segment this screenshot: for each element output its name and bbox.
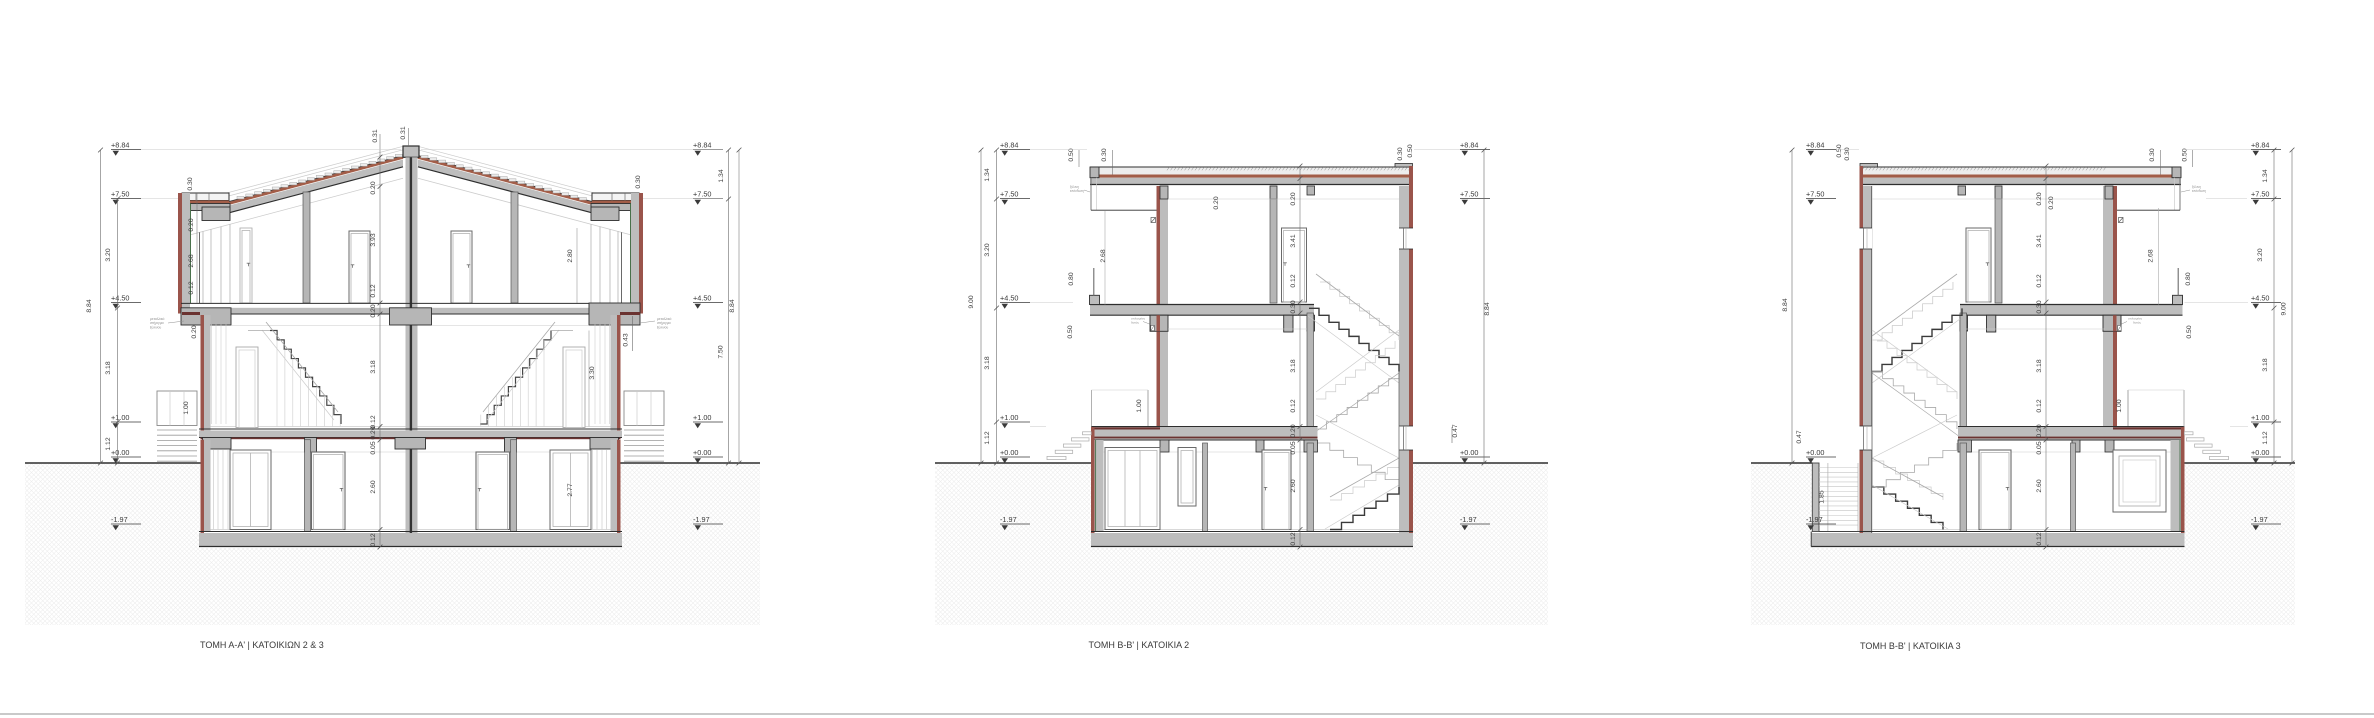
svg-text:0.31: 0.31 — [372, 129, 379, 142]
svg-text:+1.00: +1.00 — [111, 413, 129, 422]
svg-text:1.34: 1.34 — [984, 168, 991, 181]
svg-text:0.50: 0.50 — [1836, 144, 1843, 157]
svg-text:0.31: 0.31 — [400, 126, 407, 139]
svg-text:2.68: 2.68 — [188, 254, 195, 267]
svg-text:1.34: 1.34 — [2262, 169, 2269, 182]
svg-text:+8.84: +8.84 — [2251, 141, 2269, 150]
svg-text:0.20: 0.20 — [1290, 192, 1297, 205]
svg-text:0.80: 0.80 — [2185, 272, 2192, 285]
svg-text:7.50: 7.50 — [718, 345, 725, 358]
svg-text:+0.00: +0.00 — [1000, 448, 1018, 457]
svg-text:0.12: 0.12 — [1290, 274, 1297, 287]
svg-text:0.30: 0.30 — [187, 177, 194, 190]
svg-text:0.43: 0.43 — [623, 333, 630, 346]
svg-text:+8.84: +8.84 — [693, 141, 711, 150]
svg-text:3.41: 3.41 — [1290, 234, 1297, 247]
svg-text:+8.84: +8.84 — [111, 141, 129, 150]
svg-text:3.93: 3.93 — [370, 233, 377, 246]
svg-text:+7.50: +7.50 — [2251, 190, 2269, 199]
svg-text:0.12: 0.12 — [2036, 399, 2043, 412]
svg-text:+0.00: +0.00 — [111, 448, 129, 457]
svg-text:+4.50: +4.50 — [2251, 294, 2269, 303]
svg-text:2.60: 2.60 — [370, 480, 377, 493]
svg-text:1.00: 1.00 — [2116, 399, 2123, 412]
svg-text:0.20: 0.20 — [370, 304, 377, 317]
svg-text:0.30: 0.30 — [2149, 148, 2156, 161]
svg-text:2.77: 2.77 — [567, 483, 574, 496]
svg-text:1.00: 1.00 — [1136, 399, 1143, 412]
svg-text:+8.84: +8.84 — [1460, 141, 1478, 150]
svg-text:0.47: 0.47 — [1796, 430, 1803, 443]
svg-text:+7.50: +7.50 — [1460, 190, 1478, 199]
svg-text:0.80: 0.80 — [1068, 272, 1075, 285]
svg-text:0.47: 0.47 — [1452, 424, 1459, 437]
svg-text:+7.50: +7.50 — [693, 190, 711, 199]
svg-text:επένδυση: επένδυση — [2192, 189, 2206, 193]
svg-text:1.12: 1.12 — [984, 431, 991, 444]
svg-text:ΤΟΜΗ Α-Α' | ΚΑΤΟΙΚΙΩΝ 2 & 3: ΤΟΜΗ Α-Α' | ΚΑΤΟΙΚΙΩΝ 2 & 3 — [200, 640, 324, 650]
svg-text:3.18: 3.18 — [984, 356, 991, 369]
svg-text:+7.50: +7.50 — [1806, 190, 1824, 199]
svg-text:0.20: 0.20 — [2036, 424, 2043, 437]
svg-text:0.50: 0.50 — [2186, 325, 2193, 338]
svg-text:-1.97: -1.97 — [693, 515, 710, 524]
svg-text:+7.50: +7.50 — [111, 190, 129, 199]
svg-text:0.50: 0.50 — [1068, 148, 1075, 161]
svg-text:+7.50: +7.50 — [1000, 190, 1018, 199]
svg-text:+1.00: +1.00 — [2251, 413, 2269, 422]
svg-text:+1.00: +1.00 — [693, 413, 711, 422]
svg-text:0.12: 0.12 — [2036, 274, 2043, 287]
svg-text:δοκός: δοκός — [2133, 320, 2141, 324]
svg-text:+8.84: +8.84 — [1000, 141, 1018, 150]
svg-text:0.12: 0.12 — [2036, 532, 2043, 545]
svg-text:-1.97: -1.97 — [111, 515, 128, 524]
svg-text:0.30: 0.30 — [1290, 300, 1297, 313]
svg-text:+0.00: +0.00 — [1460, 448, 1478, 457]
svg-text:0.20: 0.20 — [191, 325, 198, 338]
svg-text:3.20: 3.20 — [105, 248, 112, 261]
svg-text:0.12: 0.12 — [1290, 532, 1297, 545]
svg-text:3.18: 3.18 — [1290, 359, 1297, 372]
svg-text:2.60: 2.60 — [1290, 479, 1297, 492]
svg-text:0.20: 0.20 — [370, 181, 377, 194]
svg-text:ξύλινου: ξύλινου — [150, 325, 161, 329]
svg-text:0.50: 0.50 — [1067, 325, 1074, 338]
svg-text:0.30: 0.30 — [1844, 147, 1851, 160]
svg-text:0.50: 0.50 — [2182, 148, 2189, 161]
svg-text:0.20: 0.20 — [188, 218, 195, 231]
svg-text:-1.97: -1.97 — [1460, 515, 1477, 524]
svg-text:0.30: 0.30 — [2036, 300, 2043, 313]
svg-text:0.30: 0.30 — [1397, 147, 1404, 160]
svg-text:0.20: 0.20 — [1213, 196, 1220, 209]
svg-text:+0.00: +0.00 — [2251, 448, 2269, 457]
svg-text:+4.50: +4.50 — [693, 294, 711, 303]
svg-text:0.30: 0.30 — [1101, 148, 1108, 161]
svg-text:0.05: 0.05 — [1290, 441, 1297, 454]
svg-text:0.12: 0.12 — [188, 281, 195, 294]
svg-text:+1.00: +1.00 — [1000, 413, 1018, 422]
svg-text:1.85: 1.85 — [1819, 490, 1826, 503]
svg-text:-1.97: -1.97 — [2251, 515, 2268, 524]
svg-text:3.41: 3.41 — [2036, 234, 2043, 247]
svg-text:0.20: 0.20 — [370, 426, 377, 439]
svg-text:+0.00: +0.00 — [1806, 448, 1824, 457]
svg-text:2.80: 2.80 — [567, 249, 574, 262]
svg-text:-1.97: -1.97 — [1000, 515, 1017, 524]
svg-text:8.84: 8.84 — [86, 299, 93, 312]
svg-text:3.18: 3.18 — [2036, 359, 2043, 372]
svg-text:3.18: 3.18 — [105, 361, 112, 374]
svg-text:0.20: 0.20 — [2048, 196, 2055, 209]
svg-text:0.12: 0.12 — [1290, 399, 1297, 412]
svg-text:0.12: 0.12 — [370, 284, 377, 297]
svg-text:ξύλινου: ξύλινου — [657, 325, 668, 329]
svg-text:3.20: 3.20 — [2257, 248, 2264, 261]
svg-text:0.30: 0.30 — [635, 175, 642, 188]
svg-text:δοκός: δοκός — [1131, 320, 1139, 324]
svg-text:-1.97: -1.97 — [1806, 515, 1823, 524]
svg-text:2.68: 2.68 — [2148, 249, 2155, 262]
svg-text:2.60: 2.60 — [2036, 479, 2043, 492]
svg-text:8.84: 8.84 — [729, 299, 736, 312]
svg-text:9.00: 9.00 — [968, 295, 975, 308]
svg-text:0.20: 0.20 — [1290, 424, 1297, 437]
svg-text:+4.50: +4.50 — [111, 294, 129, 303]
svg-text:επένδυση: επένδυση — [1070, 189, 1084, 193]
svg-text:3.18: 3.18 — [2262, 358, 2269, 371]
svg-text:ΤΟΜΗ Β-Β' | ΚΑΤΟΙΚΙΑ 2: ΤΟΜΗ Β-Β' | ΚΑΤΟΙΚΙΑ 2 — [1089, 640, 1190, 650]
svg-text:3.18: 3.18 — [370, 360, 377, 373]
svg-text:2.68: 2.68 — [1100, 249, 1107, 262]
svg-text:8.84: 8.84 — [1484, 302, 1491, 315]
svg-text:1.34: 1.34 — [718, 169, 725, 182]
svg-text:0.20: 0.20 — [2036, 192, 2043, 205]
svg-text:1.12: 1.12 — [105, 437, 112, 450]
svg-text:ΤΟΜΗ Β-Β' | ΚΑΤΟΙΚΙΑ 3: ΤΟΜΗ Β-Β' | ΚΑΤΟΙΚΙΑ 3 — [1860, 641, 1961, 651]
svg-text:3.20: 3.20 — [984, 243, 991, 256]
svg-text:9.00: 9.00 — [2281, 302, 2288, 315]
svg-text:1.12: 1.12 — [2262, 431, 2269, 444]
svg-text:8.84: 8.84 — [1782, 298, 1789, 311]
svg-text:+4.50: +4.50 — [1000, 294, 1018, 303]
svg-text:0.05: 0.05 — [370, 441, 377, 454]
svg-text:0.50: 0.50 — [1407, 144, 1414, 157]
svg-text:0.12: 0.12 — [370, 533, 377, 546]
svg-text:+0.00: +0.00 — [693, 448, 711, 457]
svg-text:0.05: 0.05 — [2036, 441, 2043, 454]
svg-text:+8.84: +8.84 — [1806, 141, 1824, 150]
svg-text:1.00: 1.00 — [183, 401, 190, 414]
